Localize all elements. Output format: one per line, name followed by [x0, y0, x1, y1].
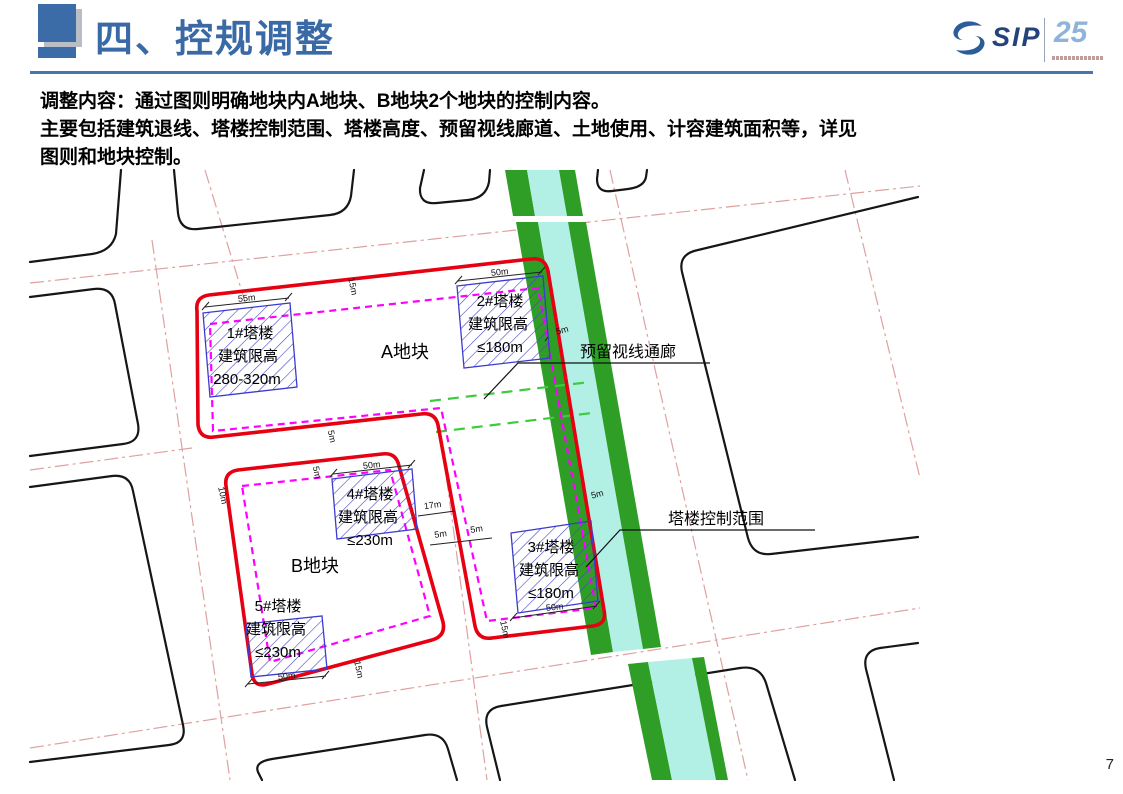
tower4-height: ≤230m	[347, 532, 393, 549]
tower2-limit-label: 建筑限高	[468, 316, 528, 333]
tower4-name: 4#塔楼	[347, 486, 394, 503]
tower1-limit-label: 建筑限高	[218, 348, 278, 365]
tower3-limit-label: 建筑限高	[519, 562, 579, 579]
tower2-height: ≤180m	[477, 339, 523, 356]
tower-4-zone	[332, 469, 417, 539]
dim-50m-t2: 50m	[490, 266, 508, 278]
dim-50m-t3: 50m	[545, 601, 563, 613]
dim-55m: 55m	[237, 292, 255, 304]
tower3-height: ≤180m	[528, 585, 574, 602]
tower1-name: 1#塔楼	[227, 325, 274, 342]
dim-5m-b-top: 5m	[311, 465, 323, 479]
road-edges	[30, 170, 918, 780]
tower4-limit-label: 建筑限高	[338, 509, 398, 526]
site-plan-map: 55m 50m 50m 50m 50m 15m 5m 5m 10m 15m 15…	[0, 0, 1123, 794]
slide: 四、控规调整 SIP 25 调整内容：通过图则明确地块内A地块、B地块2个地块的…	[0, 0, 1123, 794]
tower1-height: 280-320m	[213, 371, 281, 388]
page-number: 7	[1090, 756, 1114, 773]
dim-5m-lane-e: 5m	[470, 523, 484, 535]
tower3-name: 3#塔楼	[528, 539, 575, 556]
dim-15m-b-bottom: 15m	[352, 660, 365, 679]
dim-5m-lane-w: 5m	[434, 528, 448, 540]
tower5-name: 5#塔楼	[255, 598, 302, 615]
tower5-height: ≤230m	[255, 644, 301, 661]
tower-zone-callout: 塔楼控制范围	[668, 510, 764, 528]
plot-a-label: A地块	[381, 342, 429, 362]
dim-5m-a-bottom: 5m	[326, 429, 338, 443]
dim-50m-t5: 50m	[277, 670, 295, 682]
view-corridor-callout: 预留视线通廊	[580, 343, 676, 361]
plot-b-label: B地块	[291, 556, 339, 576]
road-centerlines	[30, 170, 920, 780]
dim-50m-t4: 50m	[362, 459, 380, 471]
dim-17m-lane: 17m	[423, 499, 442, 511]
tower2-name: 2#塔楼	[477, 293, 524, 310]
tower5-limit-label: 建筑限高	[246, 621, 306, 638]
